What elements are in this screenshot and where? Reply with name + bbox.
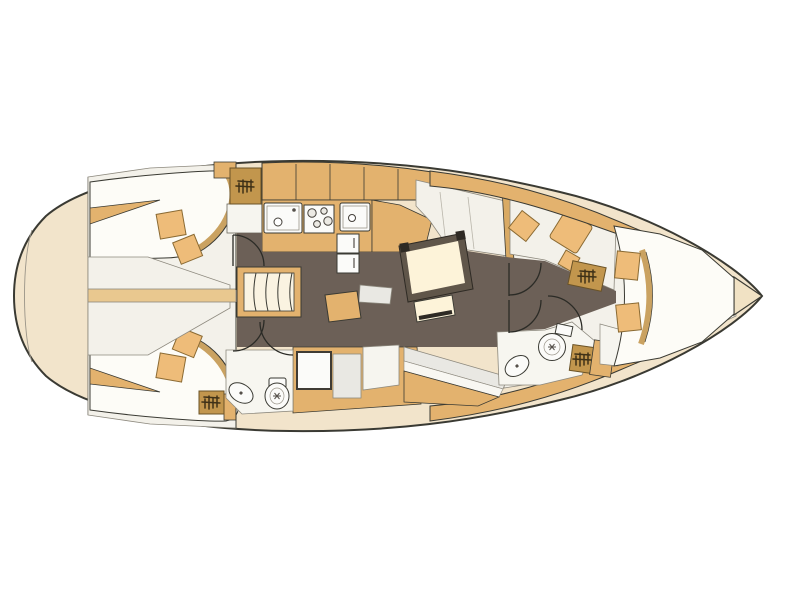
burner — [314, 221, 321, 228]
pillow — [156, 353, 186, 382]
fridge-drawer — [337, 234, 359, 253]
pillow — [615, 251, 641, 280]
burner — [308, 209, 316, 217]
sink-drain — [274, 218, 282, 226]
galley-second-sink — [340, 203, 370, 231]
shower-pan — [297, 352, 331, 389]
pillow — [616, 303, 642, 332]
companionway-stairs — [237, 267, 301, 317]
stairs-treads — [244, 273, 294, 311]
galley-sink — [264, 203, 302, 233]
yacht-floor-plan — [0, 0, 800, 600]
nav-chart-table — [325, 291, 361, 322]
storage-locker — [333, 354, 361, 398]
v-berth-bed — [614, 226, 734, 366]
floor-plan-canvas — [0, 0, 800, 600]
galley-fridge — [337, 234, 359, 273]
lower-starboard-cabinetry — [293, 345, 421, 413]
burner — [321, 208, 327, 214]
nav-bench — [363, 345, 399, 390]
table-corner — [455, 230, 465, 240]
fridge-drawer — [337, 254, 359, 273]
sink-faucet — [292, 208, 296, 212]
galley-sink-unit — [264, 203, 302, 233]
aft-head — [225, 350, 293, 414]
pillow — [156, 210, 186, 239]
table-corner — [399, 242, 409, 252]
galley-stove — [304, 205, 334, 233]
side-counter — [227, 204, 262, 233]
burner — [324, 217, 332, 225]
sink-drain — [349, 215, 356, 222]
center-beam — [88, 289, 236, 302]
nav-seat-back — [359, 285, 392, 304]
